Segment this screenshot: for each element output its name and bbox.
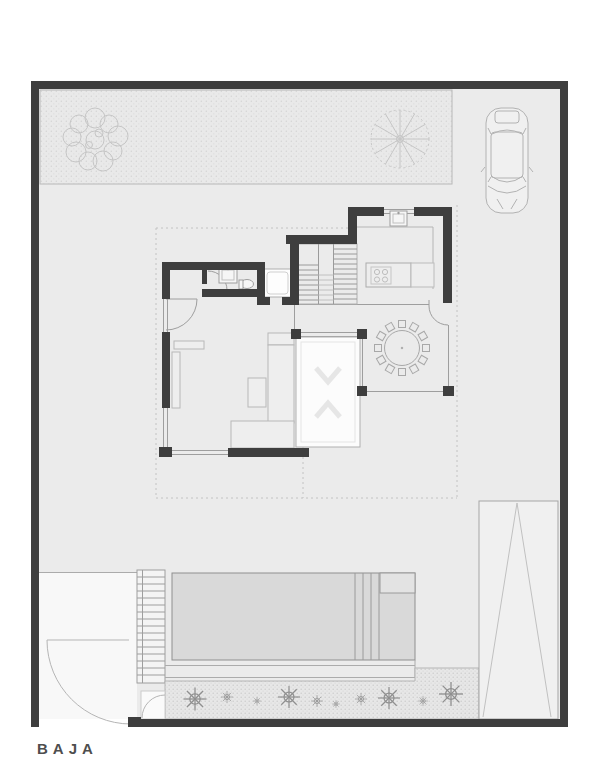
shrub-icon [332,700,340,708]
media-console [172,352,180,408]
service-gate [141,691,165,719]
column [357,329,367,339]
pool-steps [380,573,415,593]
vehicle-ramp [479,501,558,719]
console [174,341,204,349]
floor-label: BAJA [37,740,98,757]
kitchen-sink-icon [390,211,407,226]
floor-plan-drawing [0,0,600,784]
floor-plan-sheet: BAJA [0,0,600,784]
sofa [231,421,294,448]
outdoor-stairs [137,570,165,683]
column [291,329,301,339]
column [443,386,454,396]
top-garden-bed [40,90,452,184]
kitchen-island [366,263,434,287]
site-boundary-wall [31,81,568,89]
elevator [264,269,291,297]
coffee-table [248,378,266,407]
car-icon [481,108,533,213]
shrub-icon [418,696,428,706]
rear-terrace [39,572,141,719]
shrub-icon [184,688,207,711]
gate-post [128,717,141,727]
column [357,386,367,396]
toilet-icon [239,280,254,290]
courtyard-void [296,337,360,447]
column [159,447,172,457]
sofa-side-table [268,333,294,345]
swimming-pool [172,573,415,660]
sofa [268,345,294,423]
